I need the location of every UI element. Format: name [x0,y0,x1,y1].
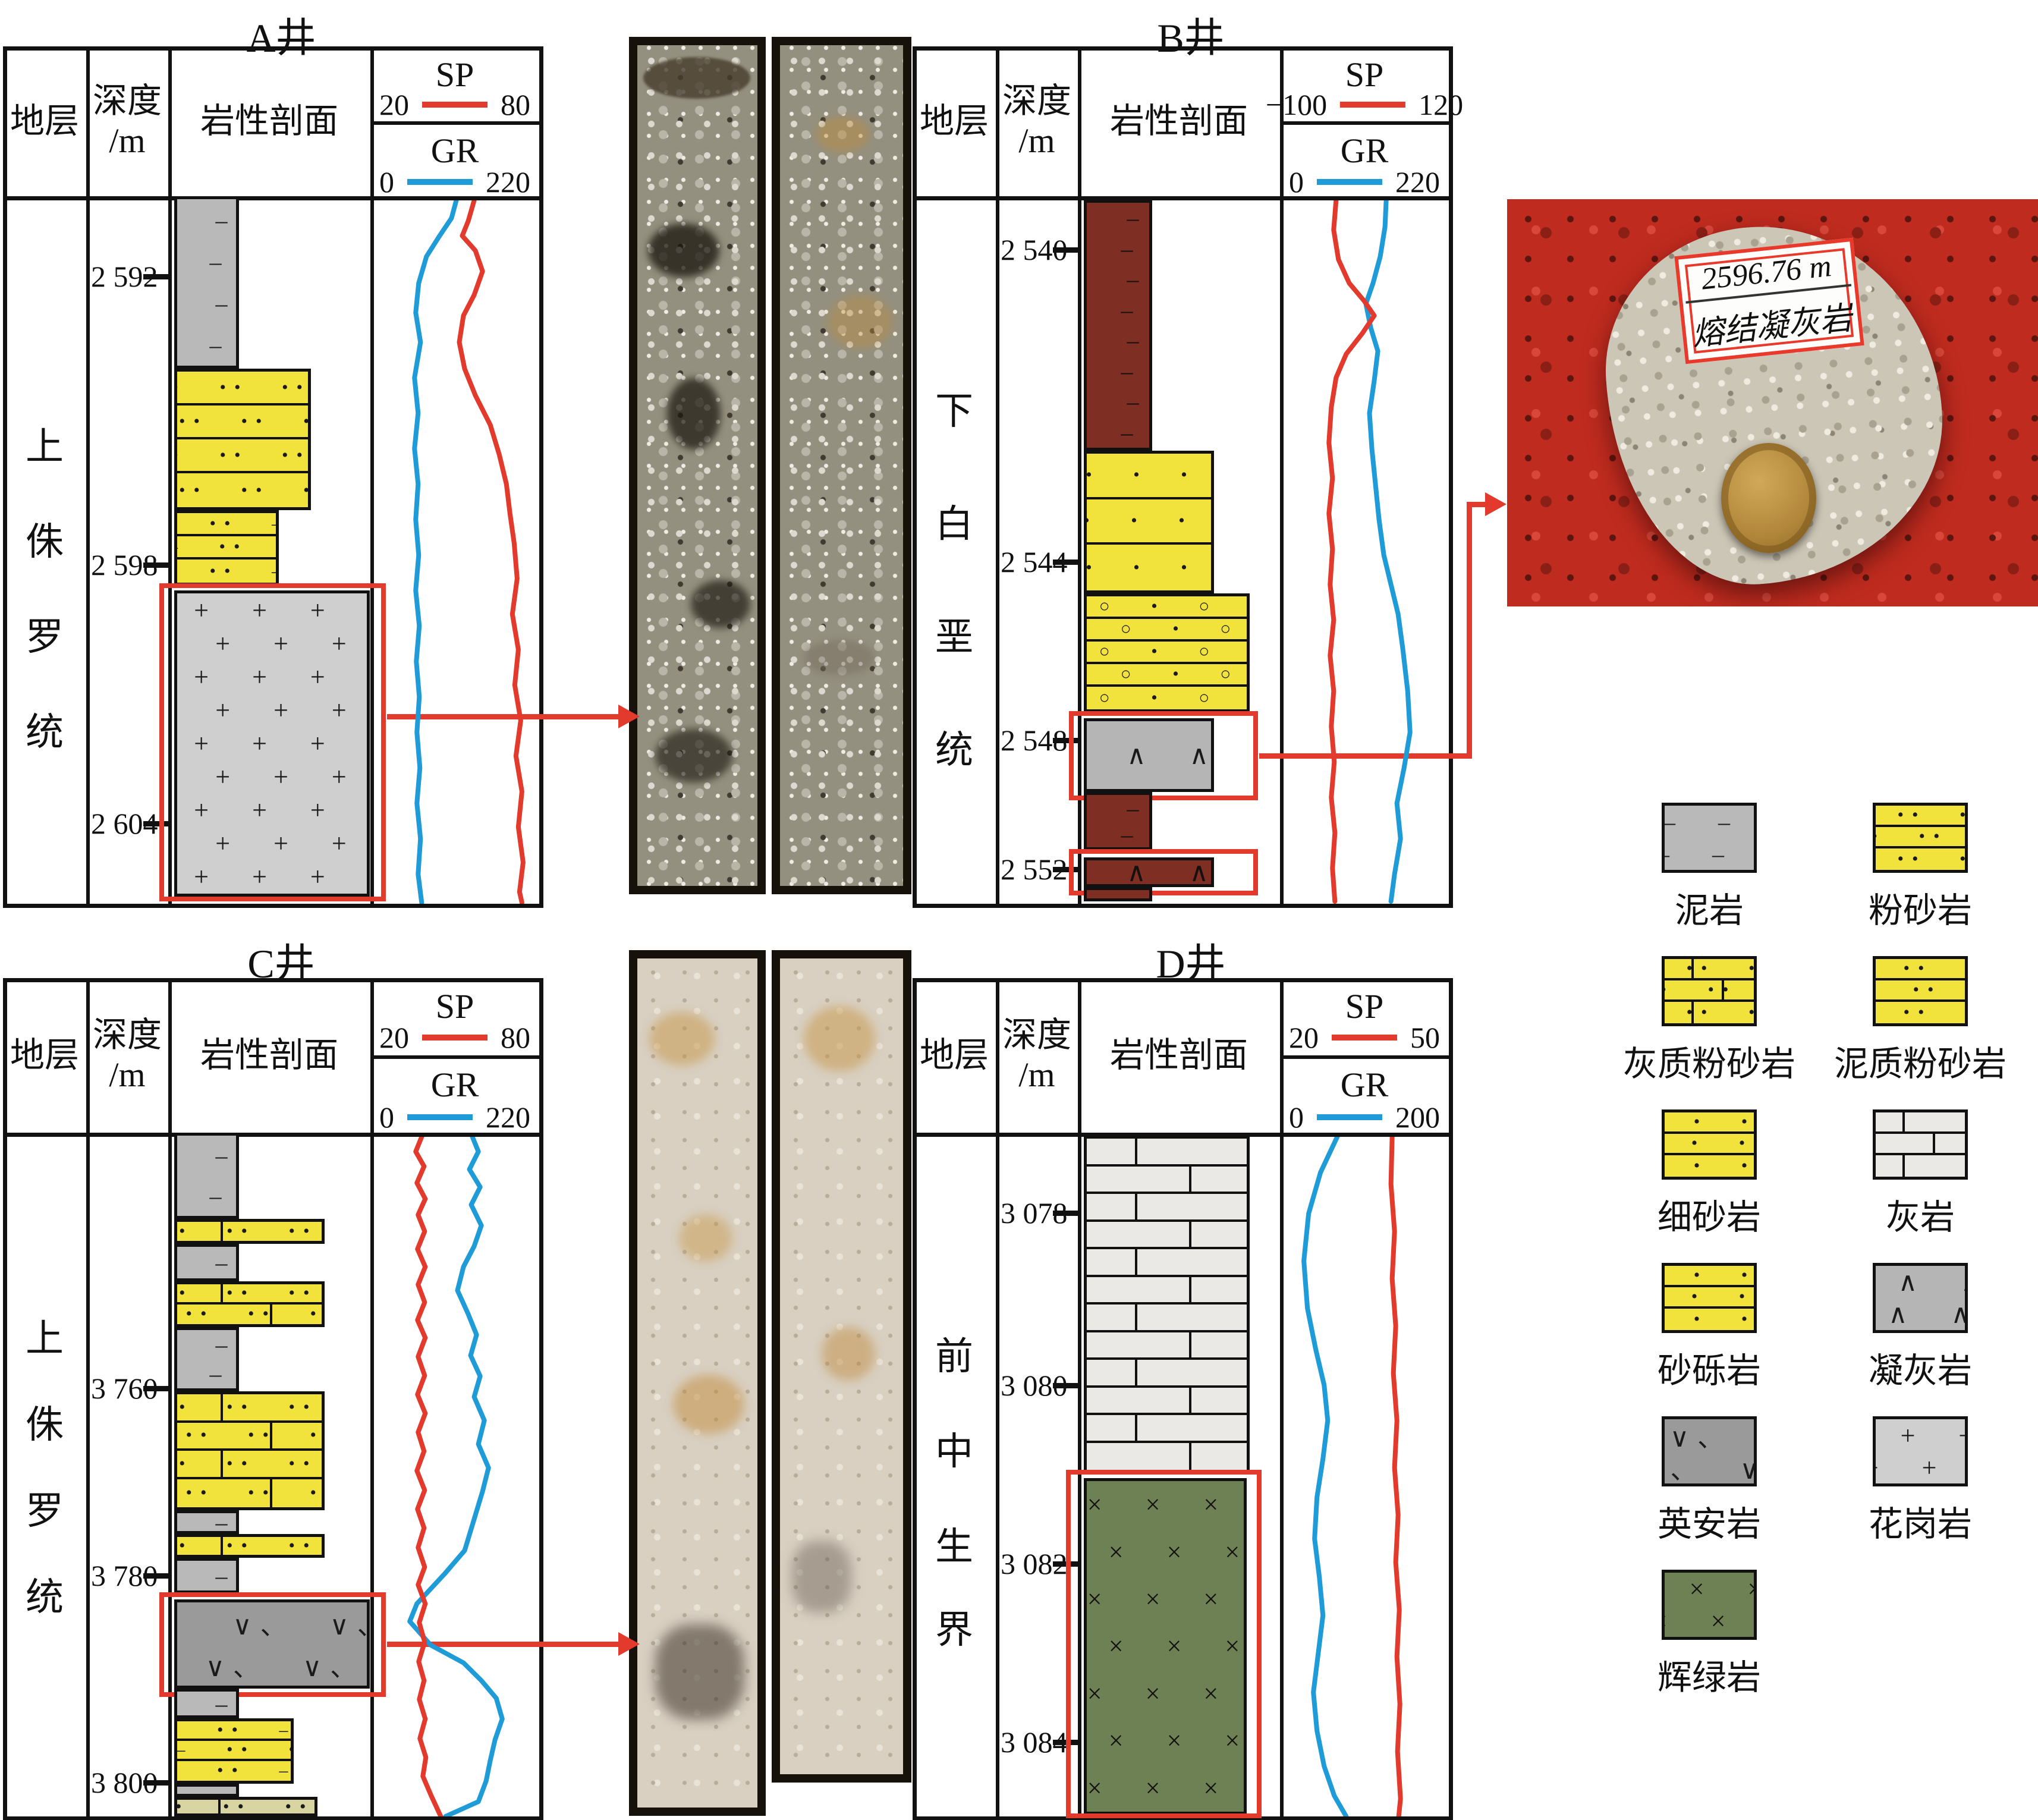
legend-label: 砂砾岩 [1658,1343,1761,1392]
stratum-label-char: 罗 [26,1480,64,1535]
lith-pattern-row: •• •• •• [177,1305,322,1325]
lith-pattern-row: •• •• •• [177,1394,322,1423]
depth-tick-label: 2 540 [1001,232,1054,267]
lith-pattern-row: ∧ ∧ ∧ [1876,1266,1965,1298]
lith-symbol: – – – [1084,419,1152,447]
lith-symbol: – – – [1084,357,1152,385]
lith-pattern-row: •• •• •• [1665,959,1754,980]
stratum-label-char: 侏 [26,1394,64,1449]
lith-unit-congl: ○ • ○○ • ○○ • ○○ • ○○ • ○ [1084,593,1250,712]
lith-pattern-row: – – – [177,324,236,366]
sp-curve [1329,200,1374,901]
lith-symbol: – •• •• [1873,980,1968,1000]
sp-min: 20 [379,87,409,122]
lith-symbol: – – – – [174,1142,239,1170]
lith-pattern-row: ∨、 ∨、 ∨、 [1665,1419,1754,1451]
lith-symbol: ∨、 ∨、 [1662,1448,1757,1486]
brick-divider [1902,1112,1905,1131]
brick-divider [218,1800,221,1813]
gr-min: 0 [379,165,394,199]
header-gr-label: GR [1341,1065,1389,1105]
lith-symbol: – – – [174,1182,239,1210]
legend-label: 凝灰岩 [1869,1343,1972,1392]
lith-pattern-row: – – – – [177,199,236,241]
core-photo-image [780,45,903,886]
header-gr-range: 0220 [379,165,530,199]
lith-pattern-row: – – – [177,1176,236,1217]
brick-divider [1189,1332,1191,1358]
lith-symbol: × × × [1662,1574,1757,1604]
sp-curve-swatch [422,1035,488,1041]
lith-symbol: – – – [174,248,239,276]
sp-curve-swatch [422,102,488,108]
brick-divider [1691,959,1694,978]
depth-tick-mark [1053,1383,1081,1388]
core-arrow-head [618,705,640,728]
lith-symbol: – •• •• [174,537,279,557]
highlight-box-dacite [159,1592,386,1697]
legend-label: 粉砂岩 [1869,882,1972,932]
lith-pattern-row: • • • [1665,1266,1754,1287]
lith-symbol: ○ • ○ [1099,642,1218,662]
lith-symbol: – – – – [1662,808,1757,836]
lith-pattern-row: • • • [1665,1155,1754,1177]
lith-pattern-row: ∨、 ∨、 [1665,1451,1754,1483]
gr-curve [1304,1137,1346,1816]
lith-symbol: × × × [1662,1606,1757,1636]
lith-symbol: – – – – [1084,794,1152,822]
header-depth-text: 深度 /m [93,1016,162,1095]
brick-divider [1933,1134,1935,1153]
lith-pattern-row [1876,1155,1965,1177]
header-lithology: 岩性剖面 [1078,46,1280,196]
lith-unit-limy_silt: •• •• •• [174,1534,325,1558]
header-gr-range: 0220 [379,1100,530,1134]
brick-divider [1135,1415,1137,1441]
depth-tick-label: 2 592 [91,259,144,294]
header-gr-range: 0220 [1289,165,1440,199]
stratum-label-char: 上 [26,416,64,471]
sp-gr-divider [370,1055,539,1059]
depth-tick-label: 3 080 [1001,1368,1054,1403]
brick-divider [1189,1443,1191,1471]
gr-curve-swatch [1317,1114,1382,1120]
lith-symbol: – – – – [1084,326,1152,354]
stratum-label-char: 生 [935,1516,973,1571]
header-formation: 地层 [913,978,996,1133]
brick-divider [1189,1222,1191,1247]
lith-pattern-row [1087,1305,1247,1332]
lith-pattern-row: •• •• •• [177,1537,322,1555]
lith-pattern-row: ○ • ○ [1087,664,1247,687]
lith-pattern-row: • • • • [1665,1134,1754,1155]
gr-curve-swatch [407,179,473,185]
table-border-bottom [3,1816,539,1820]
core-photo-image [637,958,757,1808]
lith-symbol: – •• •• [177,1740,294,1760]
lith-pattern-row: • • • [1087,545,1211,590]
lith-symbol: ○ • ○ [1121,619,1240,639]
lith-pattern-row [1087,1360,1247,1388]
lith-symbol: – – – [1084,821,1152,848]
depth-tick-label: 3 760 [91,1371,144,1406]
brick-divider [221,1394,223,1420]
lith-symbol: •• •• •• [174,1283,318,1303]
brick-divider [1902,1155,1905,1177]
lith-unit-mud: – – – – [174,1510,239,1534]
lith-unit-mud: – – – – [174,1244,239,1281]
legend-label: 细砂岩 [1658,1189,1761,1239]
lith-symbol: •• •• •• [1662,958,1757,979]
rock-sample-photo: 2596.76 m 熔结凝灰岩 [1507,199,2038,606]
stratum-label-char: 统 [26,702,64,756]
lith-symbol: – – – – [1084,204,1152,232]
sp-max: 50 [1410,1020,1440,1055]
lith-pattern-row: •• •• •• [1665,980,1754,1002]
lith-pattern-row: •• •• •• [177,439,308,473]
sp-gr-divider [1280,1055,1449,1059]
stratum-label-char: 上 [26,1308,64,1363]
gr-max: 220 [1395,165,1440,199]
legend-swatch-花岗岩: + + ++ + + [1873,1416,1968,1486]
lith-symbol: • • • • [1084,511,1214,531]
brick-divider [1135,1139,1137,1164]
highlight-box-tuff [1069,711,1258,800]
lith-symbol: •• •• – [174,514,279,534]
brick-divider [1135,1194,1137,1219]
lith-unit-limy_silt: •• •• •• [174,1219,325,1244]
gr-curve-swatch [407,1114,473,1120]
depth-tick-label: 2 604 [91,806,144,841]
lith-pattern-row: × × × [1665,1605,1754,1637]
depth-tick-label: 3 078 [1001,1196,1054,1230]
sp-curve [1391,1137,1401,1816]
lith-pattern-row: – •• •• [177,1741,291,1761]
depth-tick-mark [143,1780,172,1786]
header-sp-range: 2050 [1289,1020,1440,1055]
header-formation: 地层 [3,46,86,196]
lith-symbol: •• •• •• [174,1797,314,1816]
brick-divider [221,1284,223,1302]
sp-curve [416,1137,441,1816]
gr-max: 220 [486,1100,530,1134]
lith-unit-red_mud: – – – –– – –– – – –– – –– – – –– – –– – … [1084,200,1152,451]
core-arrow-head [618,1632,640,1656]
lith-unit-mud: – – – – [174,1558,239,1593]
header-gr-range: 0200 [1289,1100,1440,1134]
legend-swatch-灰岩 [1873,1109,1968,1180]
lith-symbol: + + + [1873,1420,1968,1451]
lith-pattern-row: – – – [177,1359,236,1388]
lith-unit-mud [174,1784,239,1797]
highlight-box-diabase [1066,1470,1262,1818]
lith-symbol: •• •• •• [1662,980,1757,1000]
lith-symbol: • • • [1662,1309,1756,1329]
lith-pattern-row [1087,1443,1247,1471]
legend-swatch-砂砾岩: • • •• • • •• • • [1662,1263,1757,1333]
core-photo-dacite-right [772,950,911,1783]
lith-unit-limestone [1084,1136,1250,1473]
legend-swatch-泥岩: – – – –– – – [1662,803,1757,873]
core-photo-image [637,45,757,886]
table-border-right [1449,978,1453,1820]
lith-symbol: ∧ ∧ ∧ [1873,1267,1968,1297]
sp-min: 20 [1289,1020,1319,1055]
lith-pattern-row: – – – [1087,295,1149,326]
brick-divider [270,1305,272,1325]
lith-symbol: – – – – [174,206,239,234]
lith-pattern-row: – – – – [177,282,236,324]
legend-label: 泥质粉砂岩 [1834,1036,2006,1086]
core-photo-dacite-left [629,950,766,1816]
lith-pattern-row: – – – – [1087,325,1149,356]
lith-pattern-row [1087,1332,1247,1360]
lith-pattern-row: •• •• •• [177,1451,322,1479]
stratum-label-char: 前 [935,1326,973,1381]
lith-pattern-row: + + + [1876,1451,1965,1483]
lith-symbol: •• •• •• [179,480,311,501]
brick-divider [1722,980,1724,999]
sp-min: −100 [1266,87,1327,122]
lith-pattern-row [1876,1112,1965,1134]
lith-unit-mud: – – – –– – –– – – –– – – [174,196,239,369]
lith-unit-limy_silt: •• •• •••• •• •••• •• •••• •• •• [174,1391,325,1510]
core-photo-granite-right [772,37,911,894]
lith-symbol: •• •• •• [185,1483,325,1503]
header-depth-text: 深度 /m [1002,81,1071,161]
lith-unit-mud: – – – –– – – [174,1133,239,1219]
lith-symbol: ∧ ∧ [1888,1299,1968,1329]
depth-tick-label: 2 548 [1001,723,1054,757]
stratum-label-char: 侏 [26,511,64,566]
lith-symbol: • • • [1662,1112,1756,1132]
lith-pattern-row: •• •• – [1876,959,1965,980]
lith-symbol: •• •• •• [185,1425,325,1445]
lith-pattern-row: – •• •• [177,536,276,559]
gr-max: 200 [1395,1100,1440,1134]
lith-pattern-row: •• •• •• [1876,827,1965,848]
lith-pattern-row [1087,1139,1247,1167]
lith-symbol: – – – – [174,1562,239,1590]
brick-divider [1189,1277,1191,1303]
depth-tick-label: 2 598 [91,548,144,582]
lith-unit-limy_silt: •• •• •••• •• •• [174,1281,325,1327]
sp-max: 80 [501,87,530,122]
lith-symbol: – – – – [174,290,239,318]
lith-symbol: – – – [1084,296,1152,324]
legend-label: 泥岩 [1675,882,1744,932]
depth-tick-label: 3 082 [1001,1546,1054,1581]
lith-symbol: – – – – [174,1331,239,1359]
lith-pattern-row: – – – [1087,356,1149,387]
figure-canvas: 2596.76 m 熔结凝灰岩 A井地层深度 /m岩性剖面SP2080GR022… [0,0,2038,1820]
brick-divider [1135,1305,1137,1330]
lith-pattern-row: •• •• – [177,1761,291,1781]
header-lithology: 岩性剖面 [168,46,370,196]
lith-symbol: •• •• •• [174,1454,318,1474]
lith-symbol: •• •• •• [179,411,311,432]
table-border-bottom [913,904,1449,908]
lith-symbol: •• •• •• [174,1397,318,1417]
gr-curve-swatch [1317,179,1382,185]
lith-pattern-row: •• •• •• [177,406,308,439]
lith-unit-silt: •• •• •••• •• •••• •• •••• •• •• [174,369,311,510]
lith-symbol: – – – [174,1360,239,1388]
header-depth: 深度 /m [86,978,168,1133]
legend-swatch-灰质粉砂岩: •• •• •••• •• •••• •• •• [1662,956,1757,1026]
lith-pattern-row: – – – – [177,1136,236,1176]
lith-symbol: •• •• •• [1873,805,1968,825]
lith-pattern-row: •• •• •• [1876,806,1965,827]
lith-pattern-row [1087,1388,1247,1416]
lith-symbol: ○ • ○ [1121,664,1240,684]
lith-pattern-row: – – – [177,241,236,282]
lith-symbol: – – – – [1084,388,1152,416]
depth-tick-mark [1053,559,1081,565]
stratum-label-char: 中 [935,1421,973,1476]
lith-pattern-row: •• •• •• [177,1423,322,1451]
stratum-label-char: 白 [935,493,973,548]
lith-unit-mud: – – – – [174,1689,239,1718]
lith-pattern-row: ○ • ○ [1087,619,1247,642]
gr-max: 220 [486,165,530,199]
sp-curve-swatch [1340,102,1405,108]
lith-pattern-row: ○ • ○ [1087,687,1247,709]
lith-pattern-row: × × × [1665,1573,1754,1605]
sp-curve [460,200,523,903]
stratum-label-char: 垩 [935,606,973,661]
lith-pattern-row: •• •• – [177,559,276,583]
lith-symbol: •• •• •• [1873,826,1968,847]
lith-pattern-row: – – – – [177,1513,236,1531]
lith-symbol: ○ • ○ [1099,688,1218,708]
lith-symbol: – – – [1084,235,1152,263]
lith-symbol: •• •• – [1873,1002,1968,1023]
lith-pattern-row: • • • • [1665,1287,1754,1309]
sp-max: 120 [1419,87,1463,122]
lith-symbol: •• •• •• [1873,849,1968,869]
depth-tick-label: 3 800 [91,1765,144,1800]
lith-pattern-row: • • • • [1087,499,1211,545]
depth-tick-mark [1053,1211,1081,1216]
coin-scale [1721,443,1816,553]
header-formation: 地层 [913,46,996,196]
gr-min: 0 [379,1100,394,1134]
lith-pattern-row: • • • [1665,1309,1754,1330]
lith-unit-muddy_silt: •• •• –– •• •••• •• – [174,1718,294,1784]
lith-symbol: •• •• •• [185,1304,325,1324]
lith-pattern-row: ∧ ∧ [1876,1298,1965,1330]
gr-min: 0 [1289,1100,1304,1134]
lith-symbol: – – – – [174,1249,239,1277]
legend-swatch-辉绿岩: × × ×× × × [1662,1570,1757,1640]
depth-tick-mark [1053,247,1081,253]
table-border-bottom [3,904,539,908]
brick-divider [1135,1249,1137,1275]
stratum-label-char: 统 [26,1567,64,1621]
lith-symbol: • • • • [1662,1287,1757,1307]
lith-symbol: •• •• – [174,1720,294,1740]
lith-pattern-row: •• •• – [177,1721,291,1741]
gr-curve [1366,200,1410,901]
lith-symbol: •• •• •• [174,1536,318,1556]
lith-symbol: •• •• – [1873,958,1968,979]
lith-pattern-row: – – – [1087,821,1149,847]
brick-divider [1691,1002,1694,1023]
lith-pattern-row: •• •• •• [177,1222,322,1241]
photo-arrow-line-v [1467,502,1472,759]
header-lithology: 岩性剖面 [1078,978,1280,1133]
lith-pattern-row: – – – – [1087,264,1149,295]
brick-divider [221,1222,223,1241]
lith-unit-red_mud: – – – –– – – [1084,792,1152,850]
depth-tick-label: 3 780 [91,1558,144,1593]
lith-pattern-row [1087,1167,1247,1195]
lith-pattern-row: – •• •• [1876,980,1965,1002]
lith-pattern-row: – – – – [177,1247,236,1278]
lith-pattern-row: •• •• •• [1665,1002,1754,1023]
lith-pattern-row: + + + [1876,1419,1965,1451]
brick-divider [1135,1360,1137,1385]
table-border-right [539,46,543,908]
sp-min: 20 [379,1020,409,1055]
depth-tick-label: 3 084 [1001,1725,1054,1759]
lith-pattern-row: •• •• •• [177,1284,322,1305]
depth-tick-label: 2 552 [1001,852,1054,887]
brick-divider [270,1423,272,1449]
lith-unit-pale_silt: •• •• •• [174,1797,317,1816]
brick-divider [221,1451,223,1477]
lith-pattern-row [1087,1249,1247,1277]
log-curves-B井 [1284,200,1449,904]
lith-symbol: • • • • [1662,1133,1757,1153]
lith-pattern-row [1087,1277,1247,1305]
lith-pattern-row: •• •• •• [177,473,308,507]
lith-symbol: •• •• •• [174,378,311,398]
depth-tick-label: 2 544 [1001,545,1054,579]
lith-symbol: •• •• – [174,561,279,581]
lith-pattern-row: – – – – [1665,806,1754,838]
lith-symbol: – – – – [1084,265,1152,293]
log-curves-A井 [374,200,539,904]
lith-pattern-row [1876,1134,1965,1155]
legend-swatch-粉砂岩: •• •• •••• •• •••• •• •• [1873,803,1968,873]
sp-max: 80 [501,1020,530,1055]
depth-tick-mark [143,562,172,568]
header-depth-text: 深度 /m [93,81,162,161]
lith-pattern-row: •• •• – [1876,1002,1965,1023]
header-formation: 地层 [3,978,86,1133]
sample-lithology-text: 熔结凝灰岩 [1690,291,1854,355]
table-border-right [1449,46,1453,908]
depth-tick-mark [143,1573,172,1579]
lith-pattern-row [1087,1222,1247,1250]
brick-divider [1189,1388,1191,1413]
lith-symbol: •• •• •• [174,445,311,466]
stratum-label-char: 统 [935,719,973,774]
lith-unit-fine_sand: • • •• • • •• • • [1084,451,1214,593]
lith-pattern-row: – – – – [177,1561,236,1590]
lith-pattern-row: •• •• •• [177,1800,314,1813]
core-photo-granite-left [629,37,766,894]
lith-pattern-row: • • • [1087,454,1211,499]
lith-symbol: • • • [1662,1156,1756,1176]
lith-pattern-row: – – – [1087,417,1149,448]
legend-label: 灰质粉砂岩 [1623,1036,1795,1086]
lith-symbol: – – – – [174,1510,239,1534]
lith-symbol: – – – [1662,840,1757,868]
lith-symbol: • • • [1086,558,1196,578]
